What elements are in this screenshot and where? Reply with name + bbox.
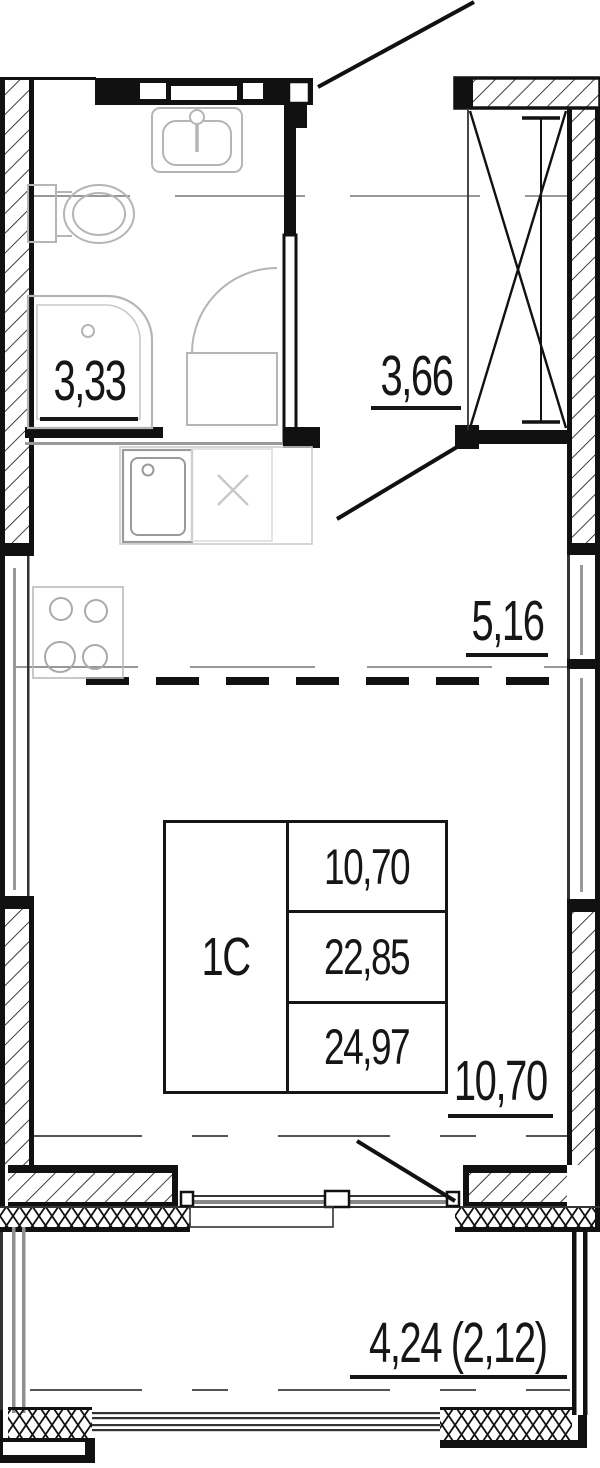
floor-plan: 3,33 3,66 5,16 10,70 4,24 (2,12) 1С 10,7…	[0, 0, 600, 1468]
balcony-area-underline	[350, 1375, 567, 1379]
info-table-values-column: 10,70 22,85 24,97	[289, 823, 445, 1091]
hallway-area-underline	[371, 406, 461, 410]
kitchen-area-underline	[466, 653, 548, 657]
living-area-value: 10,70	[324, 842, 409, 892]
washbasin	[152, 108, 242, 172]
left-exterior-wall	[0, 78, 34, 1208]
total-area-value: 24,97	[324, 1022, 409, 1072]
shower-tray	[28, 296, 152, 428]
info-table: 1С 10,70 22,85 24,97	[163, 820, 448, 1094]
wardrobe-shaft	[468, 108, 566, 430]
balcony-walls	[0, 1227, 588, 1463]
entrance-leader-line	[318, 2, 474, 87]
living-room-area-underline	[448, 1114, 553, 1118]
hallway-bottom-wall	[455, 425, 570, 449]
bathroom-door	[187, 268, 277, 425]
stove	[33, 587, 123, 678]
kitchen-leader-line	[337, 447, 457, 519]
bathroom-area-underline	[40, 417, 138, 421]
area-no-balcony-cell: 22,85	[289, 913, 445, 1003]
kitchen-sink	[123, 450, 192, 542]
toilet	[28, 185, 134, 243]
room-bottom-wall-left-block	[0, 1165, 190, 1232]
total-area-cell: 24,97	[289, 1004, 445, 1091]
washing-machine	[192, 449, 272, 541]
living-area-cell: 10,70	[289, 823, 445, 913]
area-no-balcony-value: 22,85	[324, 932, 409, 982]
unit-type-value: 1С	[202, 930, 250, 984]
unit-type-cell: 1С	[166, 823, 289, 1091]
top-wall	[0, 77, 600, 128]
balcony-door-window-band	[181, 1141, 459, 1227]
room-bottom-wall-right-block	[455, 1165, 600, 1232]
floor-plan-drawing	[0, 0, 600, 1468]
right-exterior-wall	[567, 78, 600, 1232]
kitchen-counter	[120, 447, 312, 544]
bathroom-partition-wall	[25, 105, 320, 448]
